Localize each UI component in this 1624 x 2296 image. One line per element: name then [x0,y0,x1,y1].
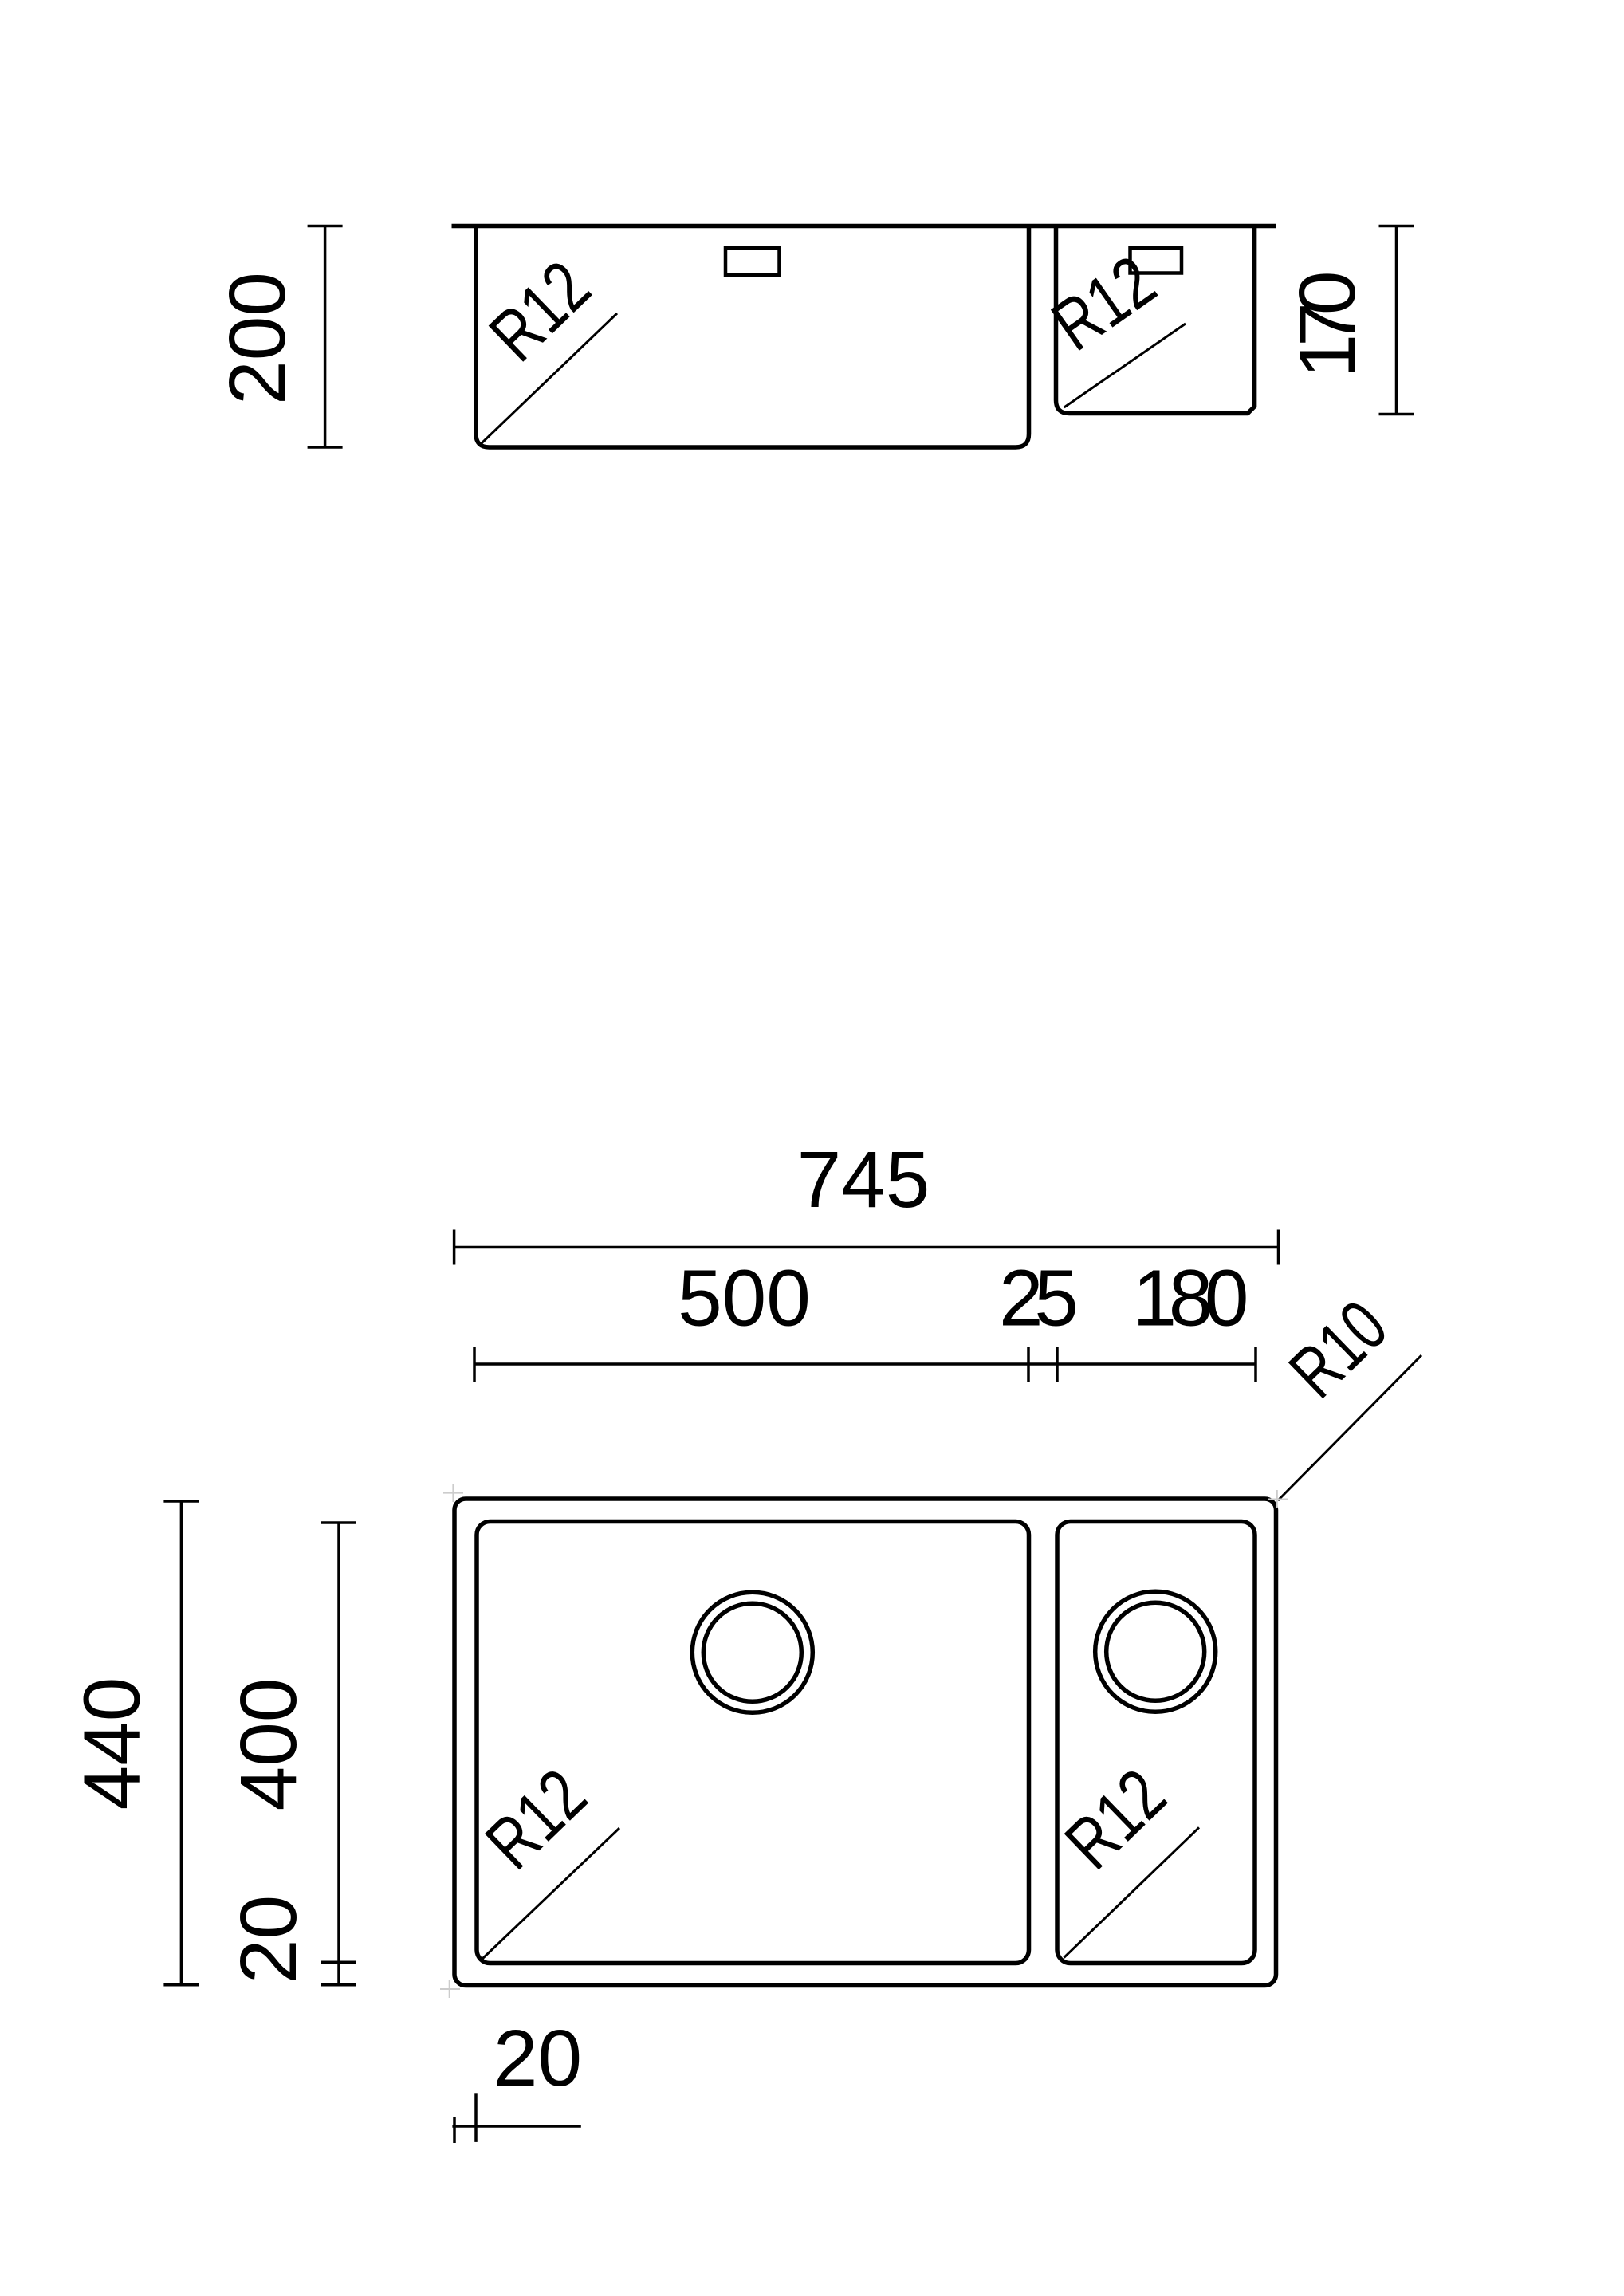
svg-text:170: 170 [1283,271,1372,379]
svg-text:745: 745 [797,1135,930,1225]
svg-text:200: 200 [213,272,302,405]
svg-text:400: 400 [224,1678,313,1811]
svg-text:180: 180 [1133,1254,1249,1343]
svg-text:20: 20 [493,2014,582,2103]
svg-text:500: 500 [678,1254,811,1343]
svg-text:20: 20 [224,1895,313,1983]
svg-text:25: 25 [999,1254,1079,1343]
svg-text:440: 440 [68,1677,157,1810]
